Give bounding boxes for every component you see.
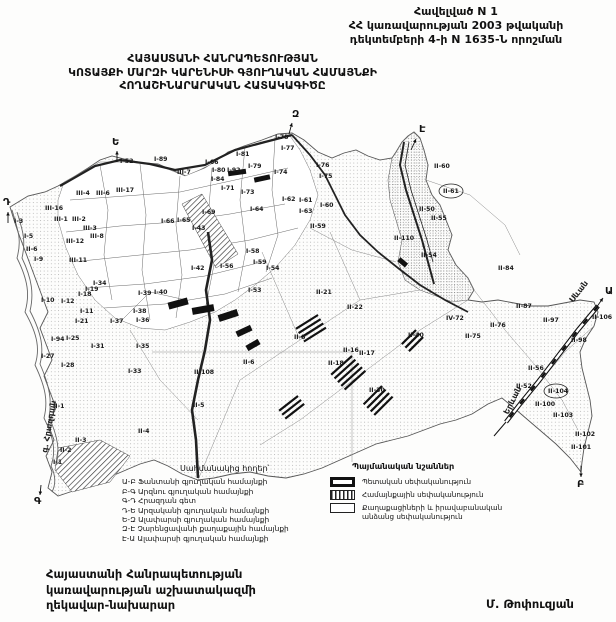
legend-item-label: Պետական սեփականություն [362, 477, 520, 486]
parcel-label: I-12 [61, 298, 74, 305]
title-line-1: ՀԱՅԱՍՏԱՆԻ ՀԱՆՐԱՊԵՏՈՒԹՅԱՆ [50, 52, 395, 66]
parcel-label: II-75 [465, 333, 481, 340]
parcel-label: I-35 [136, 343, 149, 350]
private-swatch-icon [330, 503, 355, 513]
parcel-label: III-2 [72, 216, 86, 223]
title-line-2: ԿՈՏԱՅՔԻ ՄԱՐԶԻ ԿԱՐԵՆԻՍԻ ԳՅՈՒՂԱԿԱՆ ՀԱՄԱՅՆՔ… [50, 66, 395, 80]
parcel-label: I-69 [202, 209, 215, 216]
parcel-label: I-21 [75, 318, 88, 325]
parcel-label: III-17 [116, 187, 134, 194]
parcel-label: I-9 [34, 256, 43, 263]
adjacent-land-item: Զ-Է Չարենցավանի քաղաքային համայնքի [122, 524, 289, 533]
legend-item: Քաղաքացիների և իրավաբանական անձանց սեփակ… [330, 503, 520, 521]
parcel-label: II-55 [431, 215, 447, 222]
parcel-label: II-104 [548, 388, 569, 395]
parcel-label: I-75 [319, 173, 332, 180]
parcel-label: II-60 [434, 163, 450, 170]
parcel-label: II-61 [443, 188, 459, 195]
parcel-label: I-71 [221, 185, 234, 192]
parcel-label: II-17 [359, 350, 375, 357]
parcel-label: I-33 [128, 368, 141, 375]
parcel-label: I-66 [205, 159, 218, 166]
parcel-label: II-106 [592, 314, 612, 321]
parcel-label: II-103 [553, 412, 573, 419]
parcel-label: II-102 [575, 431, 595, 438]
parcel-label: III-11 [69, 257, 87, 264]
boundary-letter-arrow [289, 123, 292, 134]
parcel-label: II-108 [194, 369, 214, 376]
scanned-map-page: I-52I-89III-7III-17III-16III-4III-6III-1… [0, 0, 616, 622]
parcel-label: I-59 [253, 259, 266, 266]
parcel-label: III-6 [96, 190, 110, 197]
decree-line-2: դեկտեմբերի 4-ի N 1635-Ն որոշման [300, 33, 612, 47]
parcel-label: I-10 [41, 297, 55, 304]
parcel-label: III-7 [177, 169, 191, 176]
parcel-label: I-28 [61, 362, 74, 369]
parcel-label: II-98 [571, 337, 587, 344]
parcel-label: I-36 [136, 317, 149, 324]
parcel-label: I-43 [192, 225, 205, 232]
parcel-label: I-81 [236, 151, 249, 158]
parcel-label: I-73 [241, 189, 254, 196]
adjacent-land-item: Է-Ա Ալափարսի գյուղական համայնքի [122, 534, 289, 543]
parcel-label: I-92 [227, 167, 240, 174]
parcel-label: I-5 [24, 233, 33, 240]
parcel-label: I-79 [248, 163, 261, 170]
parcel-label: I-58 [246, 248, 259, 255]
adjacent-lands-title: Սահմանակից հողեր՝ [180, 464, 289, 473]
legend-item-label: Համայնքային սեփականություն [362, 490, 520, 499]
decree-line-1: ՀՀ կառավարության 2003 թվականի [300, 19, 612, 33]
signatory-title-line: Հայաստանի Հանրապետության [46, 567, 256, 583]
parcel-label: I-11 [80, 308, 93, 315]
parcel-label: II-84 [498, 265, 514, 272]
symbols-legend-list: Պետական սեփականությունՀամայնքային սեփակա… [330, 477, 520, 521]
boundary-letter-arrow [596, 298, 603, 308]
adjacent-lands-legend: Սահմանակից հողեր՝ Ա-Բ Ֆանտանի գյուղական … [122, 464, 289, 543]
boundary-letter-arrow [40, 485, 41, 495]
parcel-label: I-40 [154, 289, 168, 296]
parcel-label: I-3 [14, 218, 23, 225]
adjacent-land-item: Ա-Բ Ֆանտանի գյուղական համայնքի [122, 477, 289, 486]
parcel-label: IV-72 [446, 315, 464, 322]
parcel-label: II-40 [408, 332, 424, 339]
parcel-label: II-30 [369, 387, 385, 394]
parcel-label: II-100 [535, 401, 556, 408]
parcel-label: II-8 [294, 334, 305, 341]
parcel-label: I-77 [281, 145, 294, 152]
parcel-label: II-22 [347, 304, 363, 311]
adjacent-land-item: Ե-Զ Ալափարսի գյուղական համայնքի [122, 515, 289, 524]
parcel-label: II-5 [193, 402, 204, 409]
parcel-label: I-25 [66, 335, 79, 342]
legend-item-label: Քաղաքացիների և իրավաբանական անձանց սեփակ… [362, 503, 520, 521]
parcel-label: I-64 [250, 206, 264, 213]
parcel-label: II-110 [394, 235, 415, 242]
parcel-label: I-31 [91, 343, 104, 350]
boundary-letter: Ա [605, 286, 613, 297]
parcel-label: I-1 [53, 459, 62, 466]
parcel-label: I-37 [110, 318, 123, 325]
parcel-label: III-12 [66, 238, 84, 245]
parcel-label: II-76 [490, 322, 506, 329]
parcel-label: I-52 [120, 158, 133, 165]
parcel-label: III-3 [83, 225, 97, 232]
signatory-title-line: ղեկավար-նախարար [46, 598, 256, 614]
adjacent-lands-list: Ա-Բ Ֆանտանի գյուղական համայնքիԲ-Գ Արզնու… [122, 477, 289, 543]
parcel-label: II-4 [138, 428, 150, 435]
boundary-letter: Դ [3, 197, 11, 208]
parcel-label: I-53 [248, 287, 261, 294]
parcel-label: I-56 [220, 263, 233, 270]
parcel-label: I-42 [191, 265, 204, 272]
parcel-label: II-18 [328, 360, 344, 367]
parcel-label: II-2 [60, 447, 71, 454]
parcel-label: III-4 [76, 190, 90, 197]
parcel-label: II-87 [516, 303, 532, 310]
signatory-title: Հայաստանի Հանրապետությանկառավարության աշ… [46, 567, 256, 614]
parcel-label: II-21 [316, 289, 332, 296]
boundary-letter: Գ [34, 496, 42, 507]
parcel-label: III-16 [45, 205, 63, 212]
parcel-label: I-76 [316, 162, 329, 169]
parcel-label: II-6 [243, 359, 254, 366]
appendix-number: Հավելված N 1 [300, 5, 612, 19]
parcel-label: II-16 [343, 347, 359, 354]
adjacent-land-item: Բ-Գ Արզնու գյուղական համայնքի [122, 487, 289, 496]
parcel-label: II-3 [75, 437, 86, 444]
symbols-legend-title: Պայմանական նշաններ [352, 461, 520, 471]
boundary-letter: Է [419, 124, 426, 135]
parcel-label: II-56 [528, 365, 544, 372]
parcel-label: I-94 [51, 336, 65, 343]
parcel-label: I-61 [299, 197, 312, 204]
parcel-label: I-54 [266, 265, 280, 272]
cadastral-map: I-52I-89III-7III-17III-16III-4III-6III-1… [0, 0, 616, 622]
community-swatch-icon [330, 490, 355, 500]
parcel-label: I-65 [177, 217, 190, 224]
parcel-label: I-63 [299, 208, 312, 215]
signatory-title-line: կառավարության աշխատակազմի [46, 583, 256, 599]
parcel-label: I-18 [78, 291, 91, 298]
parcel-label: I-38 [133, 308, 146, 315]
parcel-label: II-54 [421, 252, 437, 259]
parcel-label: I-66 [161, 218, 174, 225]
boundary-letter: Բ [577, 479, 584, 490]
map-title: ՀԱՅԱՍՏԱՆԻ ՀԱՆՐԱՊԵՏՈՒԹՅԱՆ ԿՈՏԱՅՔԻ ՄԱՐԶԻ Կ… [50, 52, 395, 93]
parcel-label: I-89 [154, 156, 167, 163]
parcel-label: II-50 [419, 206, 435, 213]
state-swatch-icon [330, 477, 355, 487]
parcel-label: I-60 [320, 202, 334, 209]
parcel-label: I-27 [41, 353, 54, 360]
symbols-legend: Պայմանական նշաններ Պետական սեփականությու… [330, 461, 520, 524]
parcel-label: I-84 [211, 176, 225, 183]
signatory-name: Մ. Թոփուզյան [486, 597, 574, 611]
appendix-header: Հավելված N 1 ՀՀ կառավարության 2003 թվակա… [300, 5, 612, 47]
parcel-label: II-6 [26, 246, 37, 253]
parcel-label: II-59 [310, 223, 326, 230]
boundary-letter: Ե [112, 137, 119, 148]
parcel-label: II-97 [543, 317, 559, 324]
parcel-label: III-1 [54, 216, 68, 223]
parcel-label: I-62 [282, 196, 295, 203]
parcel-label: I-80 [212, 167, 226, 174]
boundary-letter: Զ [292, 109, 299, 120]
title-line-3: ՀՈՂԱՇԻՆԱՐԱՐԱԿԱՆ ՀԱՏԱԿԱԳԻԾԸ [50, 79, 395, 93]
legend-item: Համայնքային սեփականություն [330, 490, 520, 500]
parcel-label: I-74 [274, 169, 288, 176]
legend-item: Պետական սեփականություն [330, 477, 520, 487]
adjacent-land-item: Դ-Ե Արզականի գյուղական համայնքի [122, 506, 289, 515]
parcel-label: III-8 [90, 233, 104, 240]
parcel-label: II-101 [571, 444, 591, 451]
parcel-label: I-39 [138, 290, 151, 297]
parcel-label: I-78 [275, 134, 288, 141]
adjacent-land-item: Գ-Դ Հրազդան գետ [122, 496, 289, 505]
